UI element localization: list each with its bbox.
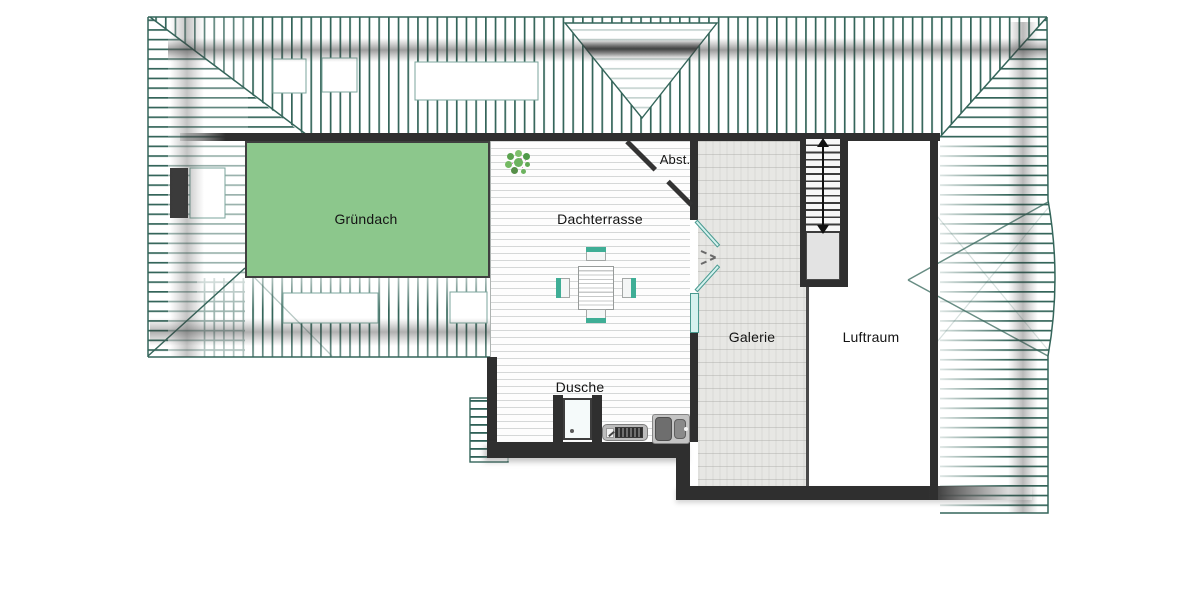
window-glass-panel — [690, 293, 699, 333]
wall-dusche-stub-left — [553, 395, 563, 442]
floorplan-canvas: Gründach Dachterrasse Abst. Galerie Luft… — [0, 0, 1200, 600]
room-label-galerie: Galerie — [702, 329, 802, 345]
arrow-down-icon — [817, 225, 829, 234]
roof-shadow — [168, 38, 1048, 62]
chair-icon — [586, 247, 606, 261]
dining-table-icon — [578, 266, 614, 310]
wall-dusche-bottom — [487, 442, 690, 458]
stair-direction-arrow — [822, 145, 824, 227]
wall-right — [930, 133, 938, 500]
sink-bowl — [655, 417, 672, 441]
skylight — [415, 62, 538, 100]
room-label-luftraum: Luftraum — [821, 329, 921, 345]
shower-drain-icon — [570, 429, 574, 433]
chair-icon — [556, 278, 570, 298]
plant-icon — [502, 144, 534, 180]
sink-icon — [652, 414, 690, 444]
room-gruendach — [245, 141, 490, 278]
wall-bottom — [676, 486, 1032, 500]
wall-terrace-galerie-lower — [690, 333, 698, 442]
radiator-slats — [615, 427, 643, 438]
chair-icon — [622, 278, 636, 298]
roof-shadow — [170, 17, 204, 357]
wall-connector — [676, 442, 690, 492]
shower-tray-icon — [563, 398, 592, 440]
wall-luftraum-edge — [806, 287, 809, 486]
wall-dusche-stub-right — [592, 395, 602, 442]
room-label-dusche: Dusche — [530, 379, 630, 395]
room-label-abstellraum: Abst. — [652, 152, 698, 167]
wall-stair-right — [840, 133, 848, 287]
faucet-icon — [684, 427, 688, 431]
arrow-up-icon — [817, 138, 829, 147]
room-galerie — [698, 141, 806, 486]
skylight — [273, 59, 306, 93]
wall-stair-bottom — [800, 280, 848, 287]
radiator-valve-icon — [606, 428, 614, 438]
chair-icon — [586, 309, 606, 323]
staircase-landing — [806, 233, 840, 280]
room-label-dachterrasse: Dachterrasse — [535, 211, 665, 227]
room-label-gruendach: Gründach — [301, 211, 431, 227]
roof-shadow — [1008, 22, 1038, 513]
radiator-icon — [602, 424, 648, 441]
skylight — [322, 58, 357, 92]
